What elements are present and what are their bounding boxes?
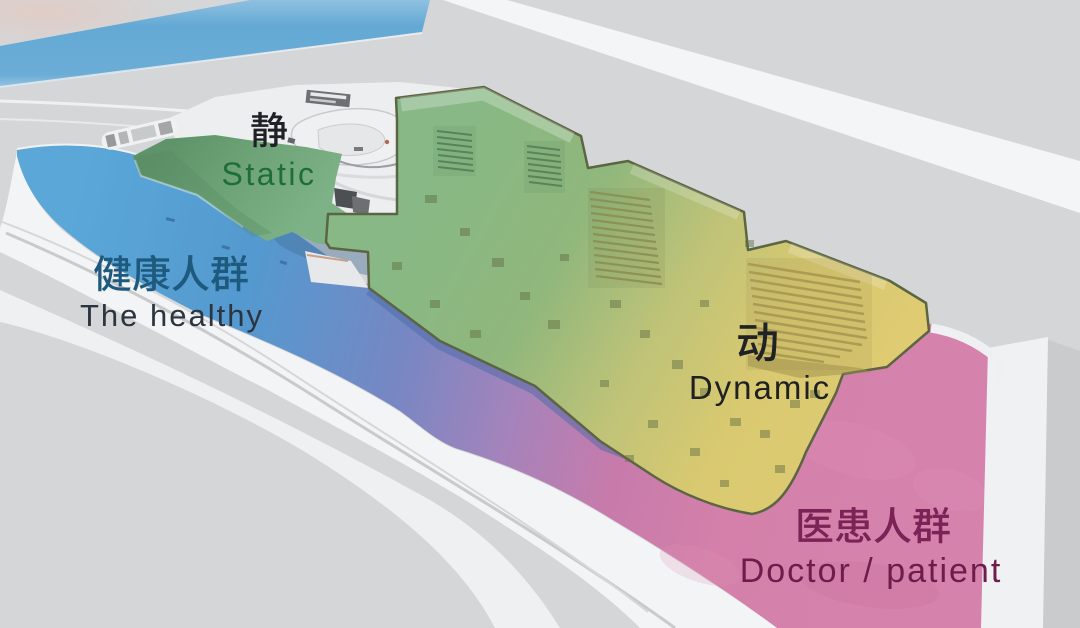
svg-text:The healthy: The healthy	[80, 298, 264, 333]
svg-text:Doctor / patient: Doctor / patient	[740, 552, 1003, 590]
svg-text:Dynamic: Dynamic	[689, 369, 831, 406]
svg-text:Static: Static	[221, 156, 316, 192]
